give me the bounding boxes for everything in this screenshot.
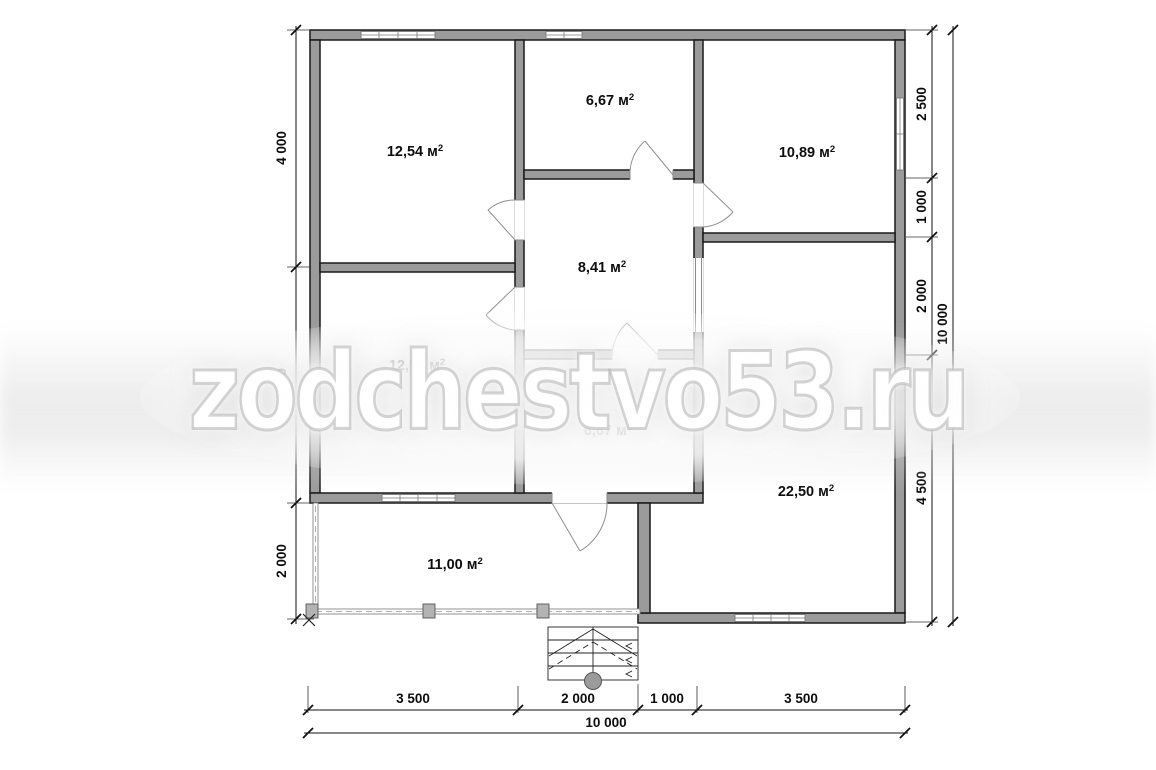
dim-bottom-2: 2 000 bbox=[561, 691, 595, 706]
dim-left-1: 4 000 bbox=[274, 131, 289, 165]
dim-right-4: 4 500 bbox=[914, 471, 929, 505]
room-label-top-right: 10,89м2 bbox=[779, 144, 835, 161]
dimension-bottom: 3 500 2 000 1 000 3 500 10 000 bbox=[303, 684, 910, 738]
window-bottom-left bbox=[382, 495, 455, 502]
dim-right-total: 10 000 bbox=[935, 303, 950, 344]
room-label-lower-center: 6,67м2 bbox=[584, 422, 632, 439]
stairs-landing-marker bbox=[585, 673, 602, 690]
entrance-door-opening bbox=[552, 492, 607, 504]
wall-below-top-right-room bbox=[703, 233, 895, 242]
room-label-terrace: 11,00м2 bbox=[427, 556, 483, 573]
porch-post bbox=[537, 604, 549, 618]
window-right bbox=[897, 98, 904, 170]
wall-room-bottom-right-left bbox=[638, 503, 650, 613]
dim-left-3: 2 000 bbox=[274, 544, 289, 578]
room-label-top-left: 12,54м2 bbox=[387, 143, 443, 160]
dim-bottom-1: 3 500 bbox=[396, 691, 430, 706]
wall-interior-vertical-left bbox=[515, 40, 524, 493]
dim-bottom-total: 10 000 bbox=[585, 715, 626, 730]
wall-exterior-bottom-left bbox=[310, 493, 703, 503]
floor-plan-page: 4 000 4 000 2 000 2 500 1 000 2 000 4 50… bbox=[0, 0, 1156, 770]
room-label-top-center: 6,67м2 bbox=[586, 92, 634, 109]
room-label-bottom-right: 22,50м2 bbox=[778, 483, 834, 500]
wall-below-hall bbox=[524, 350, 694, 359]
porch-post bbox=[423, 604, 435, 618]
room-label-mid-left: 12,54м2 bbox=[389, 357, 445, 374]
door-hall-to-top-right bbox=[703, 183, 733, 227]
wall-between-left-rooms bbox=[320, 263, 515, 272]
dim-bottom-3: 1 000 bbox=[650, 691, 684, 706]
dim-right-2: 1 000 bbox=[914, 190, 929, 224]
door-opening-hall-to-lower-center bbox=[612, 349, 658, 360]
entrance-door bbox=[552, 503, 607, 551]
window-bottom-right bbox=[735, 615, 805, 622]
dim-right-3: 2 000 bbox=[914, 279, 929, 313]
dimension-left: 4 000 4 000 2 000 bbox=[274, 25, 314, 624]
dim-left-2: 4 000 bbox=[274, 368, 289, 402]
dimension-right: 2 500 1 000 2 000 4 500 10 000 bbox=[906, 25, 958, 627]
door-opening-hall-to-top-right bbox=[693, 183, 703, 227]
door-opening-hall-to-mid-left bbox=[514, 287, 524, 330]
door-opening-hall-to-top-left bbox=[514, 200, 524, 240]
windows bbox=[361, 32, 904, 622]
passage-hall-to-bottom-right bbox=[693, 258, 703, 332]
room-label-hall: 8,41м2 bbox=[578, 259, 626, 276]
door-opening-top-center bbox=[630, 169, 673, 180]
dim-right-1: 2 500 bbox=[914, 87, 929, 121]
floor-plan-drawing: 4 000 4 000 2 000 2 500 1 000 2 000 4 50… bbox=[0, 0, 1156, 770]
wall-exterior-left bbox=[310, 40, 320, 493]
porch-post bbox=[306, 604, 318, 618]
door-hall-to-mid-left bbox=[486, 287, 515, 330]
door-hall-to-top-left bbox=[488, 200, 515, 240]
door-openings bbox=[514, 169, 703, 504]
walls bbox=[310, 30, 905, 623]
dim-bottom-4: 3 500 bbox=[784, 691, 818, 706]
window-top-center bbox=[546, 32, 582, 39]
window-top-left bbox=[361, 32, 435, 39]
stairs bbox=[548, 627, 638, 690]
